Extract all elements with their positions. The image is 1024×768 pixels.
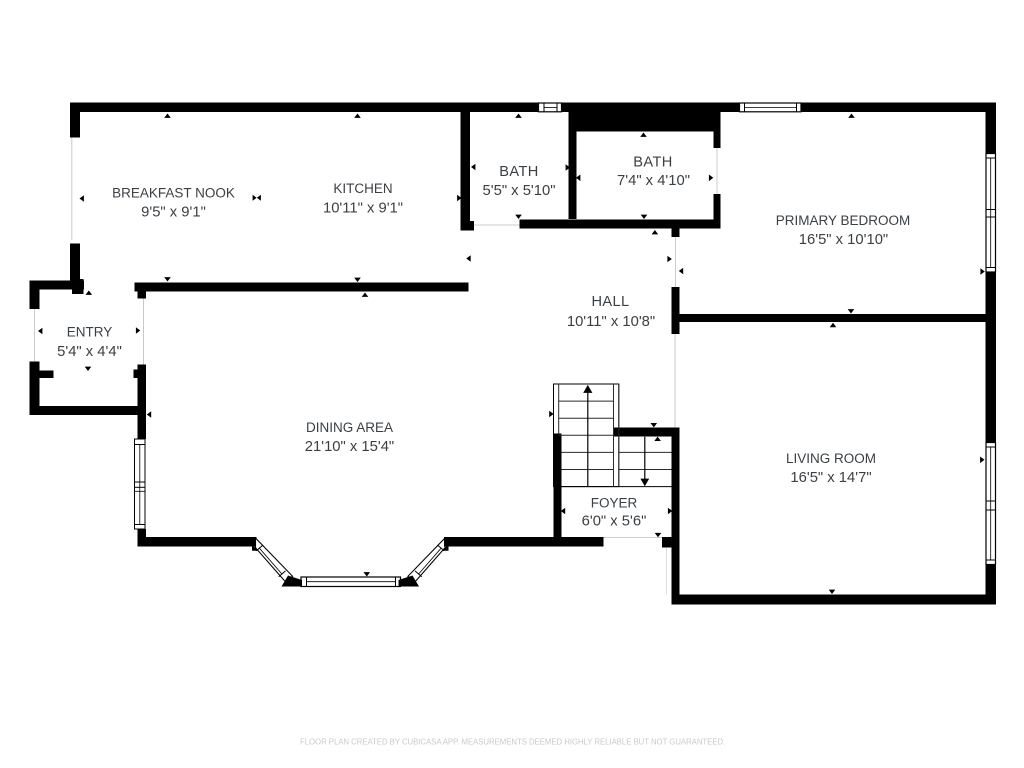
svg-text:ENTRY: ENTRY: [67, 324, 113, 339]
svg-text:21'10" x 15'4": 21'10" x 15'4": [305, 439, 394, 455]
svg-text:10'11" x 10'8": 10'11" x 10'8": [567, 314, 655, 330]
svg-text:BATH: BATH: [633, 155, 672, 171]
svg-text:5'5" x 5'10": 5'5" x 5'10": [483, 183, 556, 199]
svg-text:FLOOR PLAN CREATED BY CUBICASA: FLOOR PLAN CREATED BY CUBICASA APP. MEAS…: [300, 737, 725, 746]
svg-text:DINING AREA: DINING AREA: [306, 420, 393, 435]
svg-text:9'5" x 9'1": 9'5" x 9'1": [141, 205, 206, 221]
svg-text:FOYER: FOYER: [591, 495, 638, 510]
svg-text:LIVING ROOM: LIVING ROOM: [786, 451, 876, 466]
svg-text:16'5" x 10'10": 16'5" x 10'10": [799, 232, 888, 248]
svg-text:7'4" x 4'10": 7'4" x 4'10": [617, 173, 690, 189]
svg-text:BREAKFAST NOOK: BREAKFAST NOOK: [112, 185, 235, 200]
svg-text:5'4" x 4'4": 5'4" x 4'4": [57, 344, 122, 360]
svg-text:6'0" x 5'6": 6'0" x 5'6": [582, 514, 647, 530]
svg-text:16'5" x 14'7": 16'5" x 14'7": [790, 470, 871, 486]
svg-text:BATH: BATH: [499, 164, 538, 180]
svg-text:HALL: HALL: [591, 294, 629, 310]
svg-text:10'11" x 9'1": 10'11" x 9'1": [323, 201, 403, 217]
svg-text:PRIMARY BEDROOM: PRIMARY BEDROOM: [776, 213, 911, 228]
svg-text:KITCHEN: KITCHEN: [333, 181, 392, 196]
